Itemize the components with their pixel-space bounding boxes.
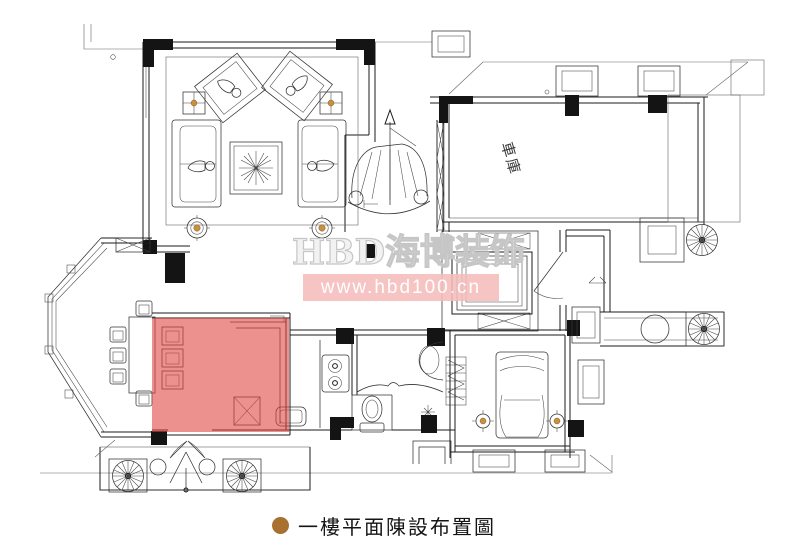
sofa-left	[172, 120, 221, 207]
living-room-furniture	[166, 51, 358, 241]
plant-icon	[227, 461, 258, 492]
plant-icon	[689, 314, 720, 345]
caption-bullet-icon	[272, 517, 289, 534]
garage-room: 車庫	[430, 31, 764, 262]
cooktop	[322, 355, 349, 392]
coffee-table	[230, 142, 282, 194]
floor-plan-canvas: 車庫	[0, 0, 800, 547]
bedroom	[450, 307, 604, 472]
curved-staircase	[348, 110, 430, 214]
curtain-line	[357, 383, 443, 393]
caption-text: 一樓平面陳設布置圖	[298, 511, 496, 540]
roof-overhang-left	[84, 24, 143, 59]
rear-step	[413, 441, 451, 464]
plant-icon	[687, 225, 718, 256]
right-walkway	[600, 312, 724, 346]
kitchen-bath	[290, 328, 466, 464]
plant-icon	[113, 461, 144, 492]
bay-window	[45, 238, 152, 437]
highlighted-room-overlay	[152, 318, 289, 432]
side-table-right	[320, 92, 342, 114]
washbasin	[419, 342, 443, 380]
wall-sconce	[472, 410, 494, 432]
caption: 一樓平面陳設布置圖	[272, 511, 496, 540]
sofa-right	[298, 120, 346, 207]
armchair-right	[262, 51, 333, 120]
dining-chair	[110, 327, 126, 342]
bed	[496, 352, 548, 438]
foyer-skylight	[442, 222, 538, 331]
dining-chair	[136, 301, 152, 316]
floor-speaker-right	[309, 215, 335, 241]
floor-plan-drawing: 車庫	[0, 0, 800, 547]
entry-porch	[95, 440, 310, 492]
radiator	[446, 357, 466, 405]
dining-chair	[110, 348, 126, 363]
toilet	[352, 395, 392, 432]
entry-arrow	[170, 452, 202, 492]
dining-chair	[110, 369, 126, 384]
garage-label: 車庫	[497, 140, 524, 178]
floor-speaker-left	[184, 215, 210, 241]
living-room-walls	[143, 39, 444, 283]
